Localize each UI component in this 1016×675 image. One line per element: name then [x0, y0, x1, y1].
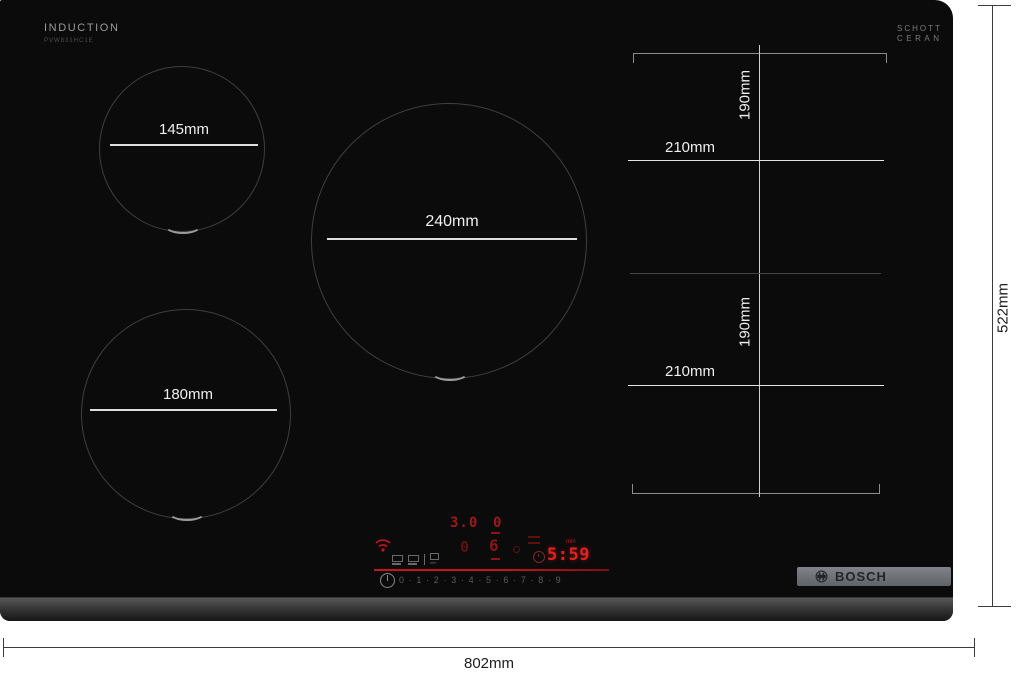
- zone-circle-240: [311, 103, 587, 379]
- flex-upper-width-label: 210mm: [665, 139, 715, 156]
- pan-zone-icon: [408, 555, 419, 565]
- boost-mark-bottom: [491, 558, 500, 560]
- flex-lower-height-label: 190mm: [737, 297, 754, 347]
- zone-notch-180: [168, 503, 206, 521]
- flex-zone-bottom-bracket: [632, 484, 880, 494]
- width-dimension-line: [3, 647, 975, 648]
- power-slider-line: [374, 569, 609, 571]
- timer-unit-label: min: [566, 539, 576, 545]
- boost-mark-top: [491, 532, 500, 534]
- display-row1-left: 3.0: [450, 515, 478, 531]
- bosch-logo-text: BOSCH: [835, 569, 887, 584]
- depth-dimension-line: [992, 5, 993, 607]
- display-row1-right: 0: [493, 515, 501, 531]
- menu-bar-icon: [528, 542, 540, 544]
- clock-icon: [533, 551, 545, 563]
- wifi-icon: [375, 539, 391, 552]
- front-bevel-edge: [0, 597, 953, 621]
- zone-circle-145: [99, 66, 265, 232]
- zone-diameter-line-240: [327, 238, 577, 240]
- schott-line: SCHOTT: [897, 24, 953, 34]
- schott-ceran-label: SCHOTT CERAN: [897, 24, 953, 44]
- flex-lower-width-label: 210mm: [665, 363, 715, 380]
- flex-zone-center-line: [759, 45, 760, 497]
- depth-dimension-label: 522mm: [995, 283, 1012, 333]
- zone-notch-145: [164, 216, 202, 234]
- flex-upper-width-line: [628, 160, 884, 161]
- zone-label-240: 240mm: [425, 213, 478, 231]
- induction-label: INDUCTION: [44, 22, 120, 34]
- bosch-logo-band: BOSCH: [797, 567, 951, 586]
- display-row2-left: 0: [460, 538, 469, 556]
- zone-notch-240: [431, 363, 469, 381]
- cooktop-surface: INDUCTION PVW831HC1E SCHOTT CERAN 145mm …: [0, 0, 953, 621]
- flex-zone-icon: [392, 555, 403, 565]
- flex-upper-height-label: 190mm: [737, 70, 754, 120]
- bosch-armature-icon: [815, 570, 828, 583]
- ceran-line: CERAN: [897, 34, 953, 44]
- power-icon: [380, 573, 395, 588]
- timer-display: 5:59: [547, 545, 590, 565]
- flex-lower-width-line: [628, 385, 884, 386]
- width-dimension-label: 802mm: [464, 655, 514, 672]
- product-dimension-diagram: INDUCTION PVW831HC1E SCHOTT CERAN 145mm …: [0, 0, 1016, 675]
- depth-dimension-tick-top: [978, 5, 1011, 6]
- zone-indicator-icon: [513, 546, 520, 553]
- flex-select-icons: min: [392, 553, 439, 565]
- flex-zone-top-bracket: [633, 53, 887, 63]
- zone-label-180: 180mm: [163, 386, 213, 403]
- width-dimension-tick-left: [3, 638, 4, 657]
- zone-circle-180: [81, 309, 291, 519]
- zone-diameter-line-145: [110, 144, 258, 146]
- flex-zone-divider: [630, 273, 881, 274]
- icon-divider: [424, 554, 425, 565]
- power-level-scale: 0 · 1 · 2 · 3 · 4 · 5 · 6 · 7 · 8 · 9: [399, 575, 562, 585]
- depth-dimension-tick-bottom: [978, 606, 1011, 607]
- model-code: PVW831HC1E: [44, 38, 94, 44]
- zone-label-145: 145mm: [159, 121, 209, 138]
- zone-diameter-line-180: [90, 409, 277, 411]
- width-dimension-tick-right: [974, 638, 975, 657]
- display-row2-right: 6: [489, 536, 499, 555]
- menu-bar-icon: [528, 536, 540, 538]
- min-sec-icon: min: [430, 553, 439, 565]
